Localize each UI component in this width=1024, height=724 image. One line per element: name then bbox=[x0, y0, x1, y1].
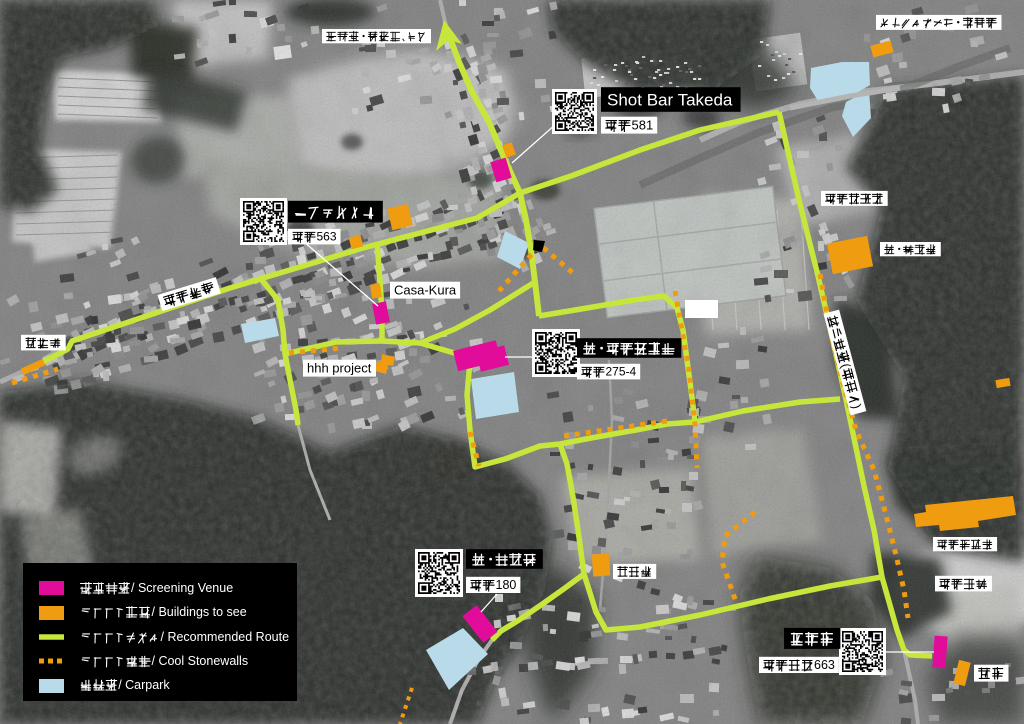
svg-text:/ Cool Stonewalls: / Cool Stonewalls bbox=[152, 654, 249, 668]
svg-text:/ Carpark: / Carpark bbox=[118, 678, 170, 692]
svg-text:/ Recommended Route: / Recommended Route bbox=[161, 630, 290, 644]
svg-text:Casa-Kura: Casa-Kura bbox=[394, 282, 457, 297]
svg-text:Shot Bar Takeda: Shot Bar Takeda bbox=[607, 91, 733, 110]
svg-text:275-4: 275-4 bbox=[606, 365, 637, 379]
svg-text:180: 180 bbox=[496, 578, 517, 592]
svg-text:hhh project: hhh project bbox=[307, 360, 372, 375]
svg-text:663: 663 bbox=[814, 658, 835, 672]
svg-text:/ Screening Venue: / Screening Venue bbox=[131, 581, 233, 595]
svg-text:563: 563 bbox=[317, 230, 337, 244]
svg-text:581: 581 bbox=[632, 117, 654, 132]
svg-text:/ Buildings to see: / Buildings to see bbox=[152, 605, 247, 619]
